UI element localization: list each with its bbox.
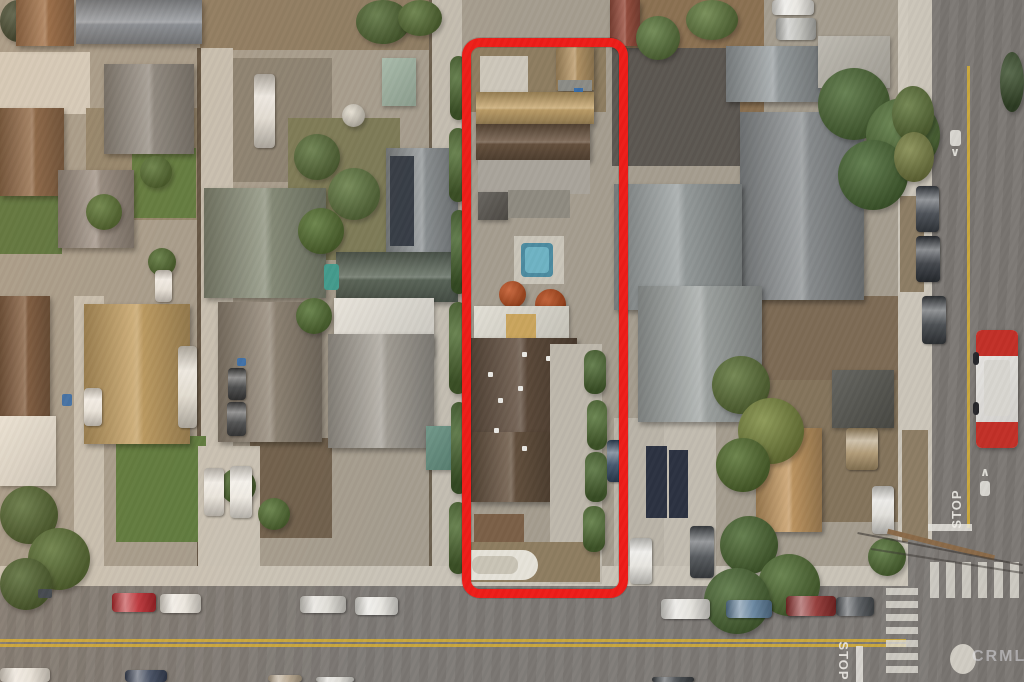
bus-roof-detail — [984, 360, 1010, 416]
palm-intersection — [868, 538, 906, 576]
sharrow-north-bike — [950, 130, 961, 146]
bus-wheel — [973, 402, 979, 415]
driveway-truck-white — [230, 466, 252, 518]
lawn-center — [116, 436, 206, 542]
rv-long-left — [254, 74, 275, 148]
house-far-left-brown-roof — [0, 108, 64, 196]
parked-suv-dark — [922, 296, 946, 344]
house-tl-tan-roof — [16, 0, 74, 46]
wall-ne — [898, 0, 908, 92]
parked-car-blue-south — [125, 670, 167, 682]
aerial-photo: ∨∧ STOP STOP CRMLS — [0, 0, 1024, 682]
parked-van-white — [300, 596, 346, 613]
garden-tree — [294, 134, 340, 180]
palm-tree — [296, 298, 332, 334]
garden-tree — [328, 168, 380, 220]
bus-front-red — [976, 330, 1018, 356]
parked-car-white-south — [316, 677, 354, 682]
yard-topleft-concrete — [0, 52, 90, 114]
car-tan-right — [846, 428, 878, 470]
parked-car-gray — [836, 597, 874, 616]
shed-right-gray-roof — [726, 46, 820, 102]
house-victorian-green-roof — [336, 252, 458, 302]
sharrow-north-chevron: ∨ — [944, 146, 966, 158]
tree-lot — [686, 0, 738, 40]
crmls-watermark: CRMLS — [972, 648, 1024, 666]
stop-marking-right-road: STOP — [949, 489, 965, 529]
driveway-van-white-left — [84, 388, 102, 426]
blue-barrel — [237, 358, 246, 366]
parked-suv-dark — [916, 236, 940, 282]
parked-truck-red — [786, 596, 836, 616]
driveway-car-gray-right — [690, 526, 714, 578]
stop-marking-bottom-road: STOP — [835, 641, 851, 681]
garden-tree — [298, 208, 344, 254]
crosswalk-bottom-bar — [886, 601, 918, 608]
crosswalk-right-bar — [930, 562, 939, 598]
house-right-a-gray-roof — [740, 112, 864, 300]
yellow-centerline-bottom-1 — [0, 639, 906, 642]
driveway-car-white — [204, 468, 224, 516]
rv-trailer-white — [178, 346, 197, 428]
parked-car-dark-south — [652, 677, 694, 682]
bus-wheel — [973, 352, 979, 365]
parked-car-white — [355, 597, 398, 615]
stop-limit-bar-bottom — [856, 646, 863, 682]
white-patio-umbrella — [342, 104, 365, 127]
palm-tree — [86, 194, 122, 230]
backyard-spa — [324, 264, 339, 290]
car-white-top — [772, 0, 814, 15]
lawn-left-2 — [0, 194, 62, 254]
house-bl-brown-roof — [0, 296, 50, 418]
backyard-dark-right — [612, 48, 740, 166]
crosswalk-right-bar — [1010, 562, 1019, 598]
trash-bins — [38, 589, 52, 598]
parked-car-red — [112, 593, 156, 612]
crosswalk-bottom-bar — [886, 653, 918, 660]
crosswalk-bottom-bar — [886, 614, 918, 621]
house-left-1-gray-roof — [104, 64, 194, 154]
crosswalk-bottom-bar — [886, 588, 918, 595]
crosswalk-bottom-bar — [886, 666, 918, 673]
greenhouse — [382, 58, 416, 106]
sharrow-south-chevron: ∧ — [974, 466, 996, 478]
parked-car-white — [160, 594, 201, 613]
tree-mid-right — [716, 438, 770, 492]
ground-solar-panel-1 — [646, 446, 667, 518]
car-silver-top — [776, 18, 816, 40]
ground-solar-panel-2 — [669, 450, 688, 518]
crosswalk-bottom-bar — [886, 640, 918, 647]
crosswalk-right-bar — [946, 562, 955, 598]
sharrow-south-bike — [980, 481, 990, 496]
house-row3-graycross-roof — [328, 334, 434, 448]
parked-car-tan-south — [268, 675, 302, 682]
house-bl-white-building — [0, 416, 56, 486]
parked-car-white — [661, 599, 710, 619]
building-tl-bluegray-roof — [76, 0, 202, 44]
tree-top — [398, 0, 442, 36]
tree-bottom-left — [0, 558, 52, 610]
palm-tree — [140, 156, 172, 188]
driveway-car-white-mid — [155, 270, 172, 302]
driveway-car-white-right — [630, 538, 652, 584]
parked-car-white-south — [0, 668, 50, 682]
crosswalk-right-bar — [962, 562, 971, 598]
parked-car-blue — [726, 600, 772, 618]
tree-lot — [636, 16, 680, 60]
property-boundary-highlight — [462, 38, 628, 598]
palm-tree — [258, 498, 290, 530]
crosswalk-bottom-bar — [886, 627, 918, 634]
dark-slat-awning — [832, 370, 894, 428]
tree-ne-edge — [1000, 52, 1024, 112]
van-white-right — [872, 486, 894, 534]
solar-panel-strip — [390, 156, 414, 246]
blue-recycle-bin — [62, 394, 72, 406]
driveway-car-dark — [227, 402, 246, 436]
driveway-car-dark — [228, 368, 246, 400]
bus-rear-red — [976, 422, 1018, 448]
parked-suv-dark — [916, 186, 939, 232]
yellow-centerline-bottom-2 — [0, 644, 906, 647]
tree-ne — [894, 132, 934, 182]
parkway-dirt-2 — [902, 430, 928, 542]
yellow-centerline-right — [967, 66, 970, 528]
